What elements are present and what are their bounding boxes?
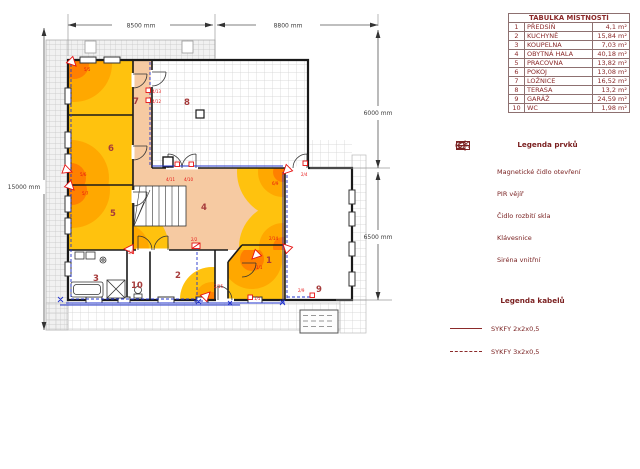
svg-text:4: 4 [201, 203, 207, 213]
room-name: PŘEDSÍŇ [525, 23, 593, 32]
room-area: 40,18 m² [593, 50, 630, 59]
dim-right-bottom: 6500 mm [364, 234, 393, 241]
legend-elements-title: Legenda prvků [455, 140, 640, 149]
svg-text:10: 10 [131, 281, 143, 291]
legend-item-label: PIR vějíř [497, 190, 524, 198]
legend-cables-title: Legenda kabelů [450, 296, 615, 305]
legend-item-label: Siréna vnitřní [497, 256, 540, 264]
cable-legend-item: SYKFY 2x2x0,5 [450, 317, 615, 340]
room-name: PRACOVNA [525, 59, 593, 68]
legend-cables: Legenda kabelů SYKFY 2x2x0,5 SYKFY 3x2x0… [450, 296, 615, 363]
svg-text:5/8: 5/8 [128, 250, 135, 255]
room-area: 13,82 m² [593, 59, 630, 68]
pool [300, 310, 338, 333]
room-garaz [286, 169, 351, 299]
room-name: TERASA [525, 86, 593, 95]
legend-item-label: Magnetické čidlo otevření [497, 168, 581, 176]
legend-item: PIR vějíř [455, 183, 640, 205]
cable-solid-line [450, 328, 482, 329]
cable-label: SYKFY 2x2x0,5 [491, 325, 539, 333]
svg-text:9: 9 [316, 285, 322, 295]
cable-label: SYKFY 3x2x0,5 [491, 348, 539, 356]
table-row: 8TERASA13,2 m² [509, 86, 630, 95]
room-num: 10 [509, 104, 525, 113]
legend-elements: Legenda prvků Magnetické čidlo otevření … [455, 140, 640, 271]
room-num: 6 [509, 68, 525, 77]
floorplan-page: 4/13 4/12 4/11 4/10 2/4 2/9 1/5 5/5 5/6 … [0, 0, 640, 469]
room-terasa [152, 60, 308, 168]
room-num: 5 [509, 59, 525, 68]
room-area: 4,1 m² [593, 23, 630, 32]
room-area: 13,08 m² [593, 68, 630, 77]
room-area: 15,84 m² [593, 32, 630, 41]
svg-text:4/11: 4/11 [166, 177, 175, 182]
table-title-row: TABULKA MÍSTNOSTÍ [509, 14, 630, 23]
room-name: KOUPELNA [525, 41, 593, 50]
table-row: 5PRACOVNA13,82 m² [509, 59, 630, 68]
room-num: 3 [509, 41, 525, 50]
dim-top-left: 8500 mm [127, 23, 156, 30]
legend-item-label: Klávesnice [497, 234, 532, 242]
svg-text:5: 5 [110, 209, 116, 219]
svg-text:6/9: 6/9 [272, 181, 279, 186]
cable-dashed-line [450, 351, 482, 352]
room-area: 13,2 m² [593, 86, 630, 95]
legend-item: Klávesnice [455, 227, 640, 249]
chimney [85, 41, 96, 53]
svg-text:8: 8 [184, 98, 190, 108]
dim-right-top: 6000 mm [364, 110, 393, 117]
table-row: 2KUCHYNĚ15,84 m² [509, 32, 630, 41]
svg-text:2/9: 2/9 [298, 288, 305, 293]
room-num: 2 [509, 32, 525, 41]
svg-text:2/4: 2/4 [301, 172, 308, 177]
paving-garage-corner [308, 140, 352, 168]
svg-text:2/15: 2/15 [214, 284, 223, 289]
cable-legend-item: SYKFY 3x2x0,5 [450, 340, 615, 363]
dim-top-right: 8800 mm [274, 23, 303, 30]
room-name: POKOJ [525, 68, 593, 77]
svg-text:1/5: 1/5 [254, 296, 261, 301]
chimney [182, 41, 193, 53]
room-table: TABULKA MÍSTNOSTÍ 1PŘEDSÍŇ4,1 m² 2KUCHYN… [508, 13, 630, 113]
room-area: 24,59 m² [593, 95, 630, 104]
room-name: GARÁŽ [525, 95, 593, 104]
svg-text:1: 1 [266, 256, 272, 266]
room-name: OBYTNÁ HALA [525, 50, 593, 59]
svg-text:2/2: 2/2 [191, 237, 198, 242]
room-name: LOŽNICE [525, 77, 593, 86]
svg-text:6: 6 [108, 144, 114, 154]
svg-text:1/1: 1/1 [256, 265, 263, 270]
room-area: 16,52 m² [593, 77, 630, 86]
table-row: 10WC1,98 m² [509, 104, 630, 113]
svg-text:5/6: 5/6 [80, 172, 87, 177]
table-row: 7LOŽNICE16,52 m² [509, 77, 630, 86]
room-num: 4 [509, 50, 525, 59]
svg-text:4/10: 4/10 [184, 177, 193, 182]
room-num: 8 [509, 86, 525, 95]
room-name: KUCHYNĚ [525, 32, 593, 41]
table-row: 1PŘEDSÍŇ4,1 m² [509, 23, 630, 32]
room-num: 9 [509, 95, 525, 104]
room-area: 7,03 m² [593, 41, 630, 50]
svg-text:5/5: 5/5 [84, 67, 91, 72]
svg-text:2/14: 2/14 [269, 236, 278, 241]
table-row: 9GARÁŽ24,59 m² [509, 95, 630, 104]
room-name: WC [525, 104, 593, 113]
svg-text:4/12: 4/12 [152, 99, 161, 104]
dim-left: 15000 mm [8, 184, 41, 191]
table-row: 4OBYTNÁ HALA40,18 m² [509, 50, 630, 59]
svg-text:3: 3 [93, 274, 99, 284]
svg-text:7: 7 [133, 97, 139, 107]
legend-item: Magnetické čidlo otevření [455, 161, 640, 183]
legend-item: Siréna vnitřní [455, 249, 640, 271]
room-num: 1 [509, 23, 525, 32]
svg-text:2: 2 [175, 271, 181, 281]
table-title: TABULKA MÍSTNOSTÍ [509, 14, 630, 23]
room-num: 7 [509, 77, 525, 86]
table-row: 6POKOJ13,08 m² [509, 68, 630, 77]
svg-text:5/7: 5/7 [82, 191, 89, 196]
legend-item-label: Čidlo rozbití skla [497, 212, 551, 220]
room-area: 1,98 m² [593, 104, 630, 113]
svg-text:4/13: 4/13 [152, 89, 161, 94]
table-row: 3KOUPELNA7,03 m² [509, 41, 630, 50]
legend-item: Čidlo rozbití skla [455, 205, 640, 227]
